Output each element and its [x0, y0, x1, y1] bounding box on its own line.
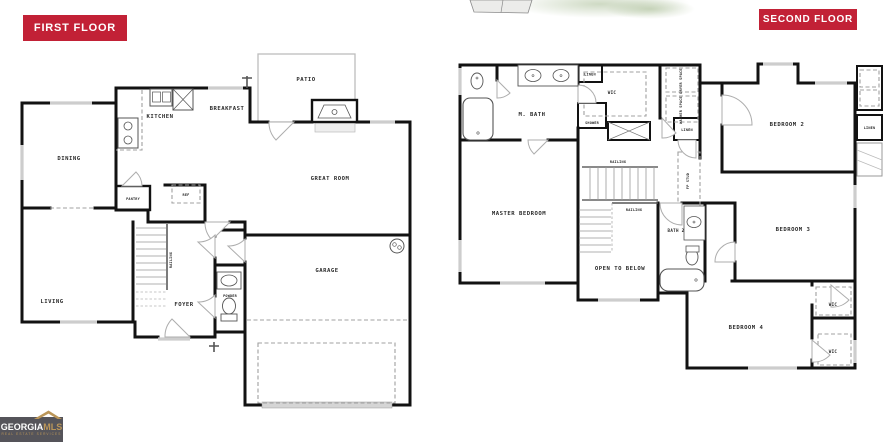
- room-label-living: LIVING: [40, 299, 63, 305]
- patio-door-swing: [269, 122, 294, 140]
- linen-door-swing: [678, 140, 696, 158]
- room-label-bedroom4: BEDROOM 4: [729, 325, 764, 331]
- room-label-kitchen: KITCHEN: [146, 114, 173, 120]
- room-label-linen-hall: LINEN: [681, 128, 693, 132]
- plans-canvas: DINING KITCHEN BREAKFAST PATIO GREAT ROO…: [0, 0, 894, 442]
- logo-brand: GEORGIAMLS: [1, 423, 63, 432]
- room-label-pantry: PANTRY: [126, 197, 141, 201]
- room-label-fp-stud: FP STUD: [686, 173, 690, 189]
- room-label-railing-ff: RAILING: [169, 252, 173, 268]
- closet-door-swing: [198, 235, 215, 258]
- second-floor-stairs: [579, 167, 658, 252]
- floor-plan-page: DINING KITCHEN BREAKFAST PATIO GREAT ROO…: [0, 0, 894, 442]
- room-label-foyer: FOYER: [174, 302, 193, 308]
- room-label-linen-right: LINEN: [864, 126, 876, 130]
- second-floor-badge-label: SECOND FLOOR: [763, 14, 853, 25]
- room-label-breakfast: BREAKFAST: [210, 106, 245, 112]
- front-door-swing: [165, 319, 190, 337]
- room-label-garage: GARAGE: [315, 268, 338, 274]
- room-label-m-bath: M. BATH: [518, 112, 545, 118]
- logo-tagline: REAL ESTATE SERVICES: [2, 432, 62, 437]
- room-label-ref: REF: [183, 193, 190, 197]
- first-floor-plan: DINING KITCHEN BREAKFAST PATIO GREAT ROO…: [22, 54, 410, 408]
- bedroom2-door-swing: [722, 95, 752, 125]
- room-label-bath2: BATH 2: [668, 228, 685, 233]
- first-floor-badge: FIRST FLOOR: [23, 15, 127, 41]
- powder-door-swing: [198, 295, 215, 318]
- wic-bottom-door-swing: [812, 340, 830, 362]
- bedroom3-door-swing: [715, 242, 735, 262]
- room-label-dining: DINING: [57, 156, 80, 162]
- master-door-swing: [528, 140, 548, 154]
- room-label-wic-b4-bottom: WIC: [829, 349, 838, 354]
- bath2-door-swing: [660, 203, 682, 225]
- room-label-bedroom3: BEDROOM 3: [776, 227, 811, 233]
- wic-door-swing: [578, 85, 596, 103]
- toilet-door-swing: [497, 80, 510, 98]
- room-label-dryer-space: DRYER SPACE: [679, 68, 683, 93]
- second-floor-plan: M. BATH WIC LINEN SHOWER DRYER SPACE WAS…: [460, 64, 882, 368]
- room-label-bedroom2: BEDROOM 2: [770, 122, 805, 128]
- house-roof-icon: [33, 410, 63, 419]
- room-label-railing-top: RAILING: [610, 160, 626, 164]
- room-label-wic: WIC: [608, 90, 617, 95]
- second-floor-badge: SECOND FLOOR: [759, 9, 857, 30]
- room-label-wic-b4-top: WIC: [829, 302, 838, 307]
- house-rendering-fragment: [470, 0, 695, 19]
- logo-brand-mls: MLS: [43, 422, 62, 432]
- garage-door-swing: [228, 239, 245, 262]
- room-label-railing-open: RAILING: [626, 208, 642, 212]
- room-label-open-to-below: OPEN TO BELOW: [595, 266, 645, 272]
- room-label-powder: POWDER: [223, 294, 238, 298]
- room-label-shower: SHOWER: [585, 121, 600, 125]
- georgia-mls-logo: GEORGIAMLS REAL ESTATE SERVICES: [0, 417, 63, 442]
- room-label-washer-space: WASHER SPACE: [679, 96, 683, 124]
- first-floor-badge-label: FIRST FLOOR: [34, 22, 116, 34]
- room-label-patio: PATIO: [296, 77, 315, 83]
- room-label-master-bedroom: MASTER BEDROOM: [492, 211, 546, 217]
- logo-brand-georgia: GEORGIA: [1, 422, 44, 432]
- pantry-door-swing: [122, 172, 142, 186]
- room-label-linen-top: LINEN: [584, 73, 596, 77]
- room-label-great-room: GREAT ROOM: [311, 176, 350, 182]
- first-floor-stairs: [136, 224, 167, 306]
